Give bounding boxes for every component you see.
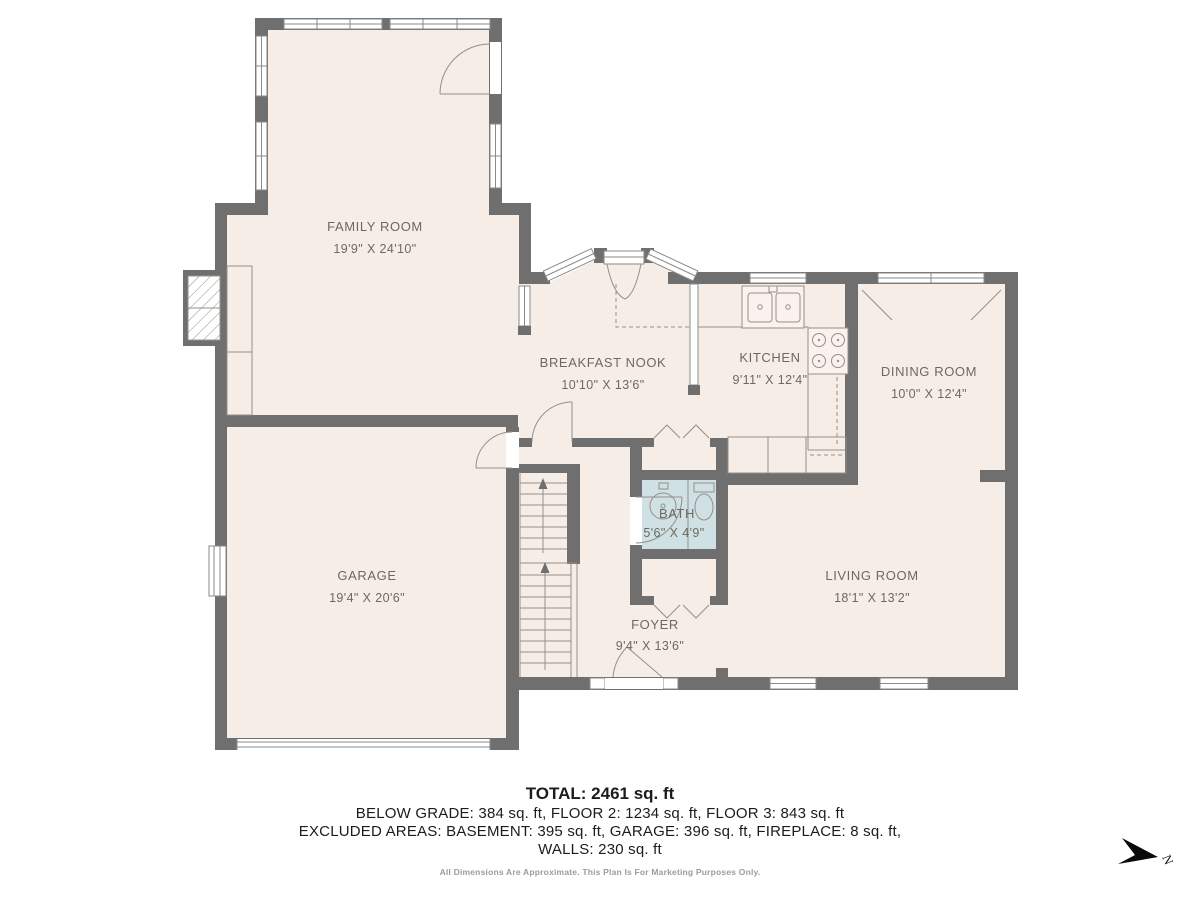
kitchen-name: KITCHEN (739, 350, 800, 365)
stove (808, 328, 848, 374)
bath-dims: 5'6" X 4'9" (643, 526, 704, 540)
compass-north-label: N (1159, 853, 1177, 868)
disclaimer-text: All Dimensions Are Approximate. This Pla… (440, 867, 761, 877)
front-door-sidelight-left (590, 678, 605, 689)
window-living-right (880, 678, 928, 689)
window-garage-left (209, 546, 226, 596)
total-area-text: TOTAL: 2461 sq. ft (526, 784, 675, 803)
family-room-dims: 19'9" X 24'10" (333, 242, 416, 256)
family-room-name: FAMILY ROOM (327, 219, 423, 234)
breakfast-nook-name: BREAKFAST NOOK (540, 355, 667, 370)
floor-plan: FAMILY ROOM 19'9" X 24'10" BREAKFAST NOO… (0, 0, 1200, 900)
window-nook-left (518, 286, 531, 335)
dining-room-dims: 10'0" X 12'4" (891, 387, 967, 401)
dining-room-name: DINING ROOM (881, 364, 977, 379)
window-family-left-lower (256, 122, 267, 190)
living-room-dims: 18'1" X 13'2" (834, 591, 910, 605)
breakfast-nook-dims: 10'10" X 13'6" (561, 378, 644, 392)
window-kitchen (750, 273, 806, 283)
garage-name: GARAGE (337, 568, 396, 583)
window-living-left (770, 678, 816, 689)
window-dining (878, 273, 984, 283)
garage-dims: 19'4" X 20'6" (329, 591, 405, 605)
floor-plan-page: FAMILY ROOM 19'9" X 24'10" BREAKFAST NOO… (0, 0, 1200, 900)
garage-door (237, 739, 490, 750)
living-room-name: LIVING ROOM (825, 568, 918, 583)
area-summary: TOTAL: 2461 sq. ft BELOW GRADE: 384 sq. … (299, 784, 901, 877)
floors-breakdown-text: BELOW GRADE: 384 sq. ft, FLOOR 2: 1234 s… (356, 805, 845, 822)
window-family-left-upper (256, 36, 267, 96)
excluded-areas-text: EXCLUDED AREAS: BASEMENT: 395 sq. ft, GA… (299, 823, 901, 840)
foyer-name: FOYER (631, 617, 679, 632)
window-family-right (490, 124, 501, 188)
foyer-dims: 9'4" X 13'6" (616, 639, 685, 653)
walls-area-text: WALLS: 230 sq. ft (538, 841, 662, 858)
bath-name: BATH (659, 506, 695, 521)
compass-north-icon: N (1118, 838, 1177, 867)
window-family-top-right (390, 19, 490, 29)
kitchen-dims: 9'11" X 12'4" (733, 373, 808, 387)
front-door-sidelight-right (663, 678, 678, 689)
window-family-top-left (284, 19, 382, 29)
kitchen-half-wall (690, 284, 698, 385)
kitchen-sink (742, 286, 804, 328)
